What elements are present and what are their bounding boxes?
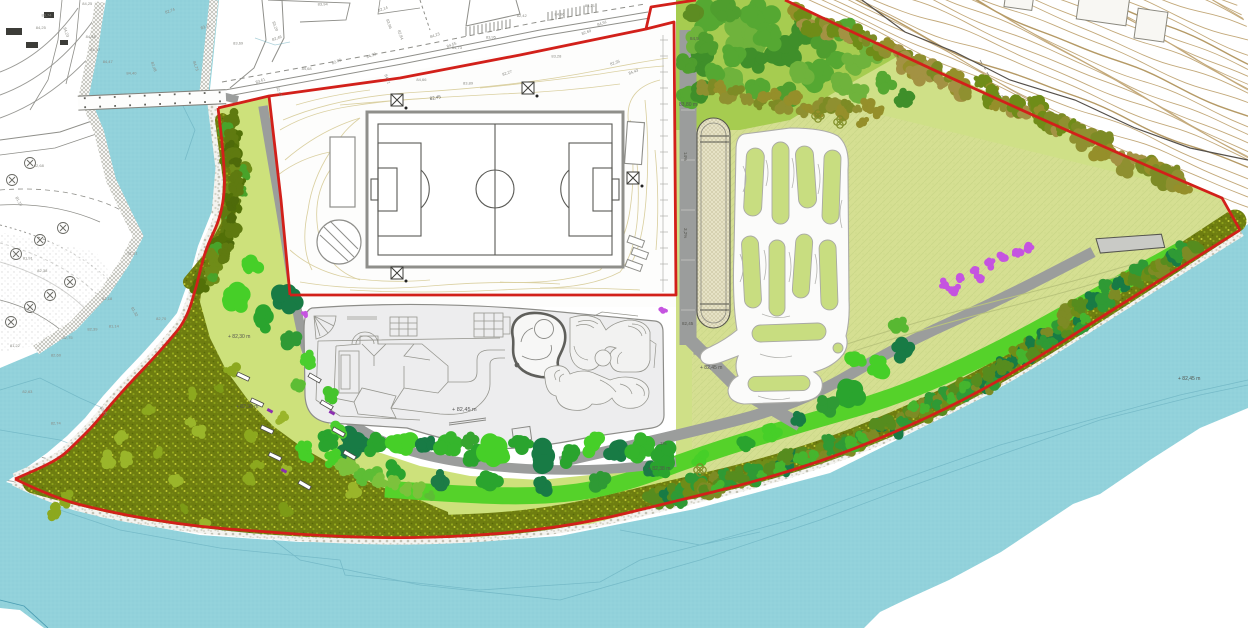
svg-text:1%: 1% xyxy=(660,441,667,446)
svg-text:82,63: 82,63 xyxy=(22,389,33,394)
svg-text:81,21: 81,21 xyxy=(127,251,138,256)
svg-text:83,89: 83,89 xyxy=(463,81,474,86)
svg-text:84,47: 84,47 xyxy=(103,59,114,64)
svg-text:82,70: 82,70 xyxy=(156,316,167,321)
svg-text:81,14: 81,14 xyxy=(109,323,120,328)
svg-text:3,2%: 3,2% xyxy=(683,228,688,238)
svg-text:82,18: 82,18 xyxy=(102,296,113,301)
svg-text:+ 82,45 m: + 82,45 m xyxy=(1178,376,1200,382)
svg-text:82,42: 82,42 xyxy=(517,13,528,18)
svg-text:82,39: 82,39 xyxy=(87,327,98,332)
svg-text:83,28: 83,28 xyxy=(551,53,562,58)
svg-text:83,74: 83,74 xyxy=(41,13,52,18)
svg-text:82,60: 82,60 xyxy=(51,352,62,357)
svg-text:+ 82,30 m: + 82,30 m xyxy=(236,404,258,410)
svg-text:83,21: 83,21 xyxy=(585,3,596,8)
svg-text:84,47: 84,47 xyxy=(90,47,101,52)
svg-text:84,68: 84,68 xyxy=(302,66,313,71)
svg-text:81,22: 81,22 xyxy=(10,343,21,348)
svg-text:84,66: 84,66 xyxy=(416,77,427,82)
svg-text:84,25: 84,25 xyxy=(36,25,47,30)
svg-text:82,74: 82,74 xyxy=(51,420,62,425)
svg-text:+ 82,30 m: + 82,30 m xyxy=(228,334,250,340)
svg-text:+ 82,45 m: + 82,45 m xyxy=(452,407,477,413)
svg-text:+ 82,38 m: + 82,38 m xyxy=(648,466,670,472)
svg-text:83,69: 83,69 xyxy=(233,41,244,46)
svg-text:84,96: 84,96 xyxy=(555,11,566,16)
svg-text:82,45: 82,45 xyxy=(682,321,694,326)
svg-text:81,91: 81,91 xyxy=(23,255,34,260)
svg-text:83,80 m: 83,80 m xyxy=(679,102,697,108)
svg-text:83,94: 83,94 xyxy=(318,1,329,6)
svg-text:84,48: 84,48 xyxy=(86,34,97,39)
svg-text:14%: 14% xyxy=(683,152,688,161)
svg-text:84,40: 84,40 xyxy=(126,71,137,76)
svg-text:83,95: 83,95 xyxy=(486,34,497,39)
svg-text:82,38: 82,38 xyxy=(37,268,48,273)
svg-text:82,68: 82,68 xyxy=(34,163,45,168)
svg-text:84,25: 84,25 xyxy=(82,1,93,6)
svg-text:82,75: 82,75 xyxy=(63,335,74,340)
svg-text:84,73: 84,73 xyxy=(452,45,463,50)
svg-text:+ 82,45 m: + 82,45 m xyxy=(700,365,722,371)
svg-text:84,5: 84,5 xyxy=(690,36,699,41)
